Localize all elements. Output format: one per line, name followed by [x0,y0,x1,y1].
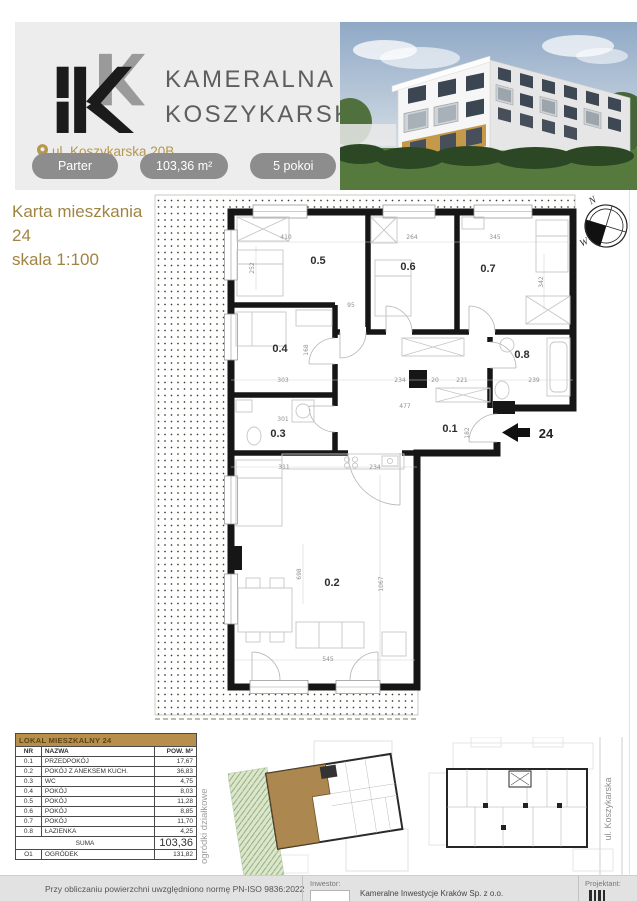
badge-floor: Parter [32,153,118,179]
garden-area-label: ogródki działkowe [199,749,210,864]
dimension-label: 342 [538,276,545,288]
room-label: 0.5 [310,255,325,267]
footer-norm-text: Przy obliczaniu powierzchni uwzględniono… [45,884,304,894]
card-title-line3: skala 1:100 [12,248,142,272]
street-label: ul. Koszykarska [603,777,613,840]
table-row: 0.1PRZEDPOKÓJ17,67 [16,757,197,767]
badge-row: Parter 103,36 m² 5 pokoi [32,153,336,179]
dimension-label: 1067 [378,576,385,591]
dimension-label: 303 [277,377,289,384]
col-header-name: NAZWA [41,747,154,757]
dimension-label: 239 [528,377,540,384]
floor-plan: 24 N W 0.50.60.70.40.80.30.10.2 41026434… [150,192,630,732]
room-label: 0.2 [324,577,339,589]
table-row: 0.2POKÓJ Z ANEKSEM KUCH.36,83 [16,767,197,777]
suma-label: SUMA [16,837,155,850]
dimension-label: 698 [296,568,303,580]
table-row: 0.8ŁAZIENKA4,25 [16,827,197,837]
dimension-label: 477 [399,403,411,410]
dimension-label: 168 [303,344,310,356]
dimension-label: 345 [489,234,501,241]
dimension-label: 545 [322,656,334,663]
table-title: LOKAL MIESZKALNY 24 [16,734,197,747]
entrance-number: 24 [539,426,554,441]
plan-section: Karta mieszkania 24 skala 1:100 [0,190,637,730]
room-label: 0.7 [480,263,495,275]
dimension-label: 252 [249,262,256,274]
suma-row: SUMA 103,36 [16,837,197,850]
area-table: LOKAL MIESZKALNY 24 NR NAZWA POW. M² 0.1… [15,733,197,860]
room-label: 0.6 [400,261,415,273]
dimension-label: 234 [394,377,406,384]
area-table-body: 0.1PRZEDPOKÓJ17,670.2POKÓJ Z ANEKSEM KUC… [16,757,197,837]
table-row: 0.4POKÓJ8,03 [16,787,197,797]
table-row: 0.3WC4,75 [16,777,197,787]
badge-area: 103,36 m² [140,153,228,179]
page-frame-line [629,190,630,874]
table-row: 0.5POKÓJ11,28 [16,797,197,807]
dimension-label: 301 [277,416,289,423]
badge-rooms: 5 pokoi [250,153,336,179]
investor-logo-box [310,890,350,901]
entrance-arrow: 24 [502,423,554,442]
dimension-label: 95 [347,302,355,309]
brand-logo [53,52,145,144]
compass-n-label: N [586,194,599,208]
card-title-line1: Karta mieszkania [12,200,142,224]
investor-name: Kameralne Inwestycje Kraków Sp. z o.o. [360,889,503,898]
street-minimap: ul. Koszykarska [423,737,627,875]
col-header-pow: POW. M² [155,747,197,757]
apartment-card-page: KAMERALNA KOSZYKARSKA ul. Koszykarska 20… [0,0,637,901]
suma-value: 103,36 [155,837,197,850]
room-label: 0.1 [442,423,457,435]
room-label: 0.3 [270,428,285,440]
table-row: 0.6POKÓJ8,85 [16,807,197,817]
col-header-nr: NR [16,747,42,757]
dimension-label: 410 [280,234,292,241]
designer-label: Projektant: [585,879,621,888]
room-label: 0.8 [514,349,529,361]
dimension-label: 234 [369,464,381,471]
designer-logo [589,890,605,901]
room-label: 0.4 [272,343,288,355]
card-title: Karta mieszkania 24 skala 1:100 [12,200,142,272]
dimension-label: 221 [456,377,468,384]
building-photo [340,22,637,190]
dimension-label: 264 [406,234,418,241]
dimension-label: 311 [278,464,290,471]
card-title-line2: 24 [12,224,142,248]
footer: Przy obliczaniu powierzchni uwzględniono… [0,875,637,901]
dimension-label: 20 [431,377,439,384]
table-row: 0.7POKÓJ11,70 [16,817,197,827]
dimension-label: 182 [464,427,471,439]
location-minimap [228,737,420,875]
garden-row: O1 OGRÓDEK 131,82 [16,850,197,860]
investor-label: Inwestor: [310,879,340,888]
